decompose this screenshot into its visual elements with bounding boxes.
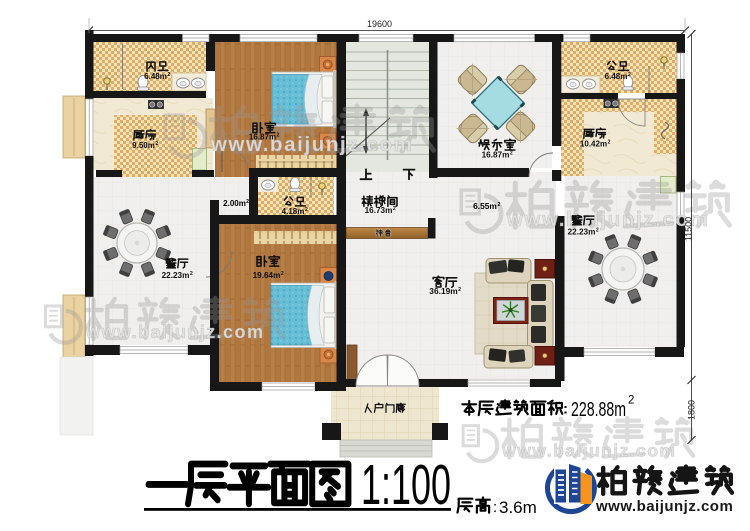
svg-text:2: 2 [510,151,513,157]
svg-text:228.88m: 228.88m [571,399,626,421]
svg-text:2: 2 [608,140,611,146]
svg-text:2: 2 [628,395,634,407]
svg-text:22.23m: 22.23m [162,271,190,280]
svg-text:6.48m: 6.48m [605,72,628,81]
svg-text:3.6m: 3.6m [499,498,537,517]
svg-text:9.50m: 9.50m [132,141,155,150]
svg-text:2: 2 [281,271,284,277]
svg-text:22.23m: 22.23m [568,228,596,237]
svg-text:2: 2 [393,206,396,212]
svg-text:4.18m: 4.18m [282,207,305,216]
svg-text:2.00m: 2.00m [223,199,246,208]
svg-text:2: 2 [156,141,159,147]
svg-text:19600: 19600 [367,19,392,29]
svg-text:36.19m: 36.19m [429,286,457,296]
svg-text:6.48m: 6.48m [144,72,167,81]
svg-text:16.87m: 16.87m [482,151,510,160]
svg-text:www.baijunjz.com: www.baijunjz.com [210,133,414,156]
svg-text:1:100: 1:100 [361,453,451,517]
svg-text:2: 2 [190,271,193,277]
svg-text:16.73m: 16.73m [365,206,393,215]
svg-text:2: 2 [498,202,501,208]
svg-text:www.baijunjz.com: www.baijunjz.com [501,441,676,461]
svg-text::: : [563,401,568,418]
svg-text:2: 2 [246,199,249,205]
svg-text:16.87m: 16.87m [249,133,276,142]
svg-text:2: 2 [168,72,171,78]
svg-text:6.55m: 6.55m [473,201,497,211]
svg-text:10.42m: 10.42m [580,140,607,149]
svg-text::: : [493,499,497,516]
svg-text:11500: 11500 [684,217,694,241]
svg-text:19.64m: 19.64m [253,271,281,280]
svg-text:2: 2 [277,133,280,139]
svg-text:www.baijunjz.com: www.baijunjz.com [595,498,733,515]
svg-text:www.baijunjz.com: www.baijunjz.com [85,322,265,342]
svg-text:1800: 1800 [687,400,697,420]
svg-text:2: 2 [305,207,308,213]
svg-text:2: 2 [458,287,461,293]
svg-text:www.baijunjz.com: www.baijunjz.com [506,208,710,231]
svg-text:2: 2 [628,72,631,78]
svg-text:2: 2 [596,228,599,234]
